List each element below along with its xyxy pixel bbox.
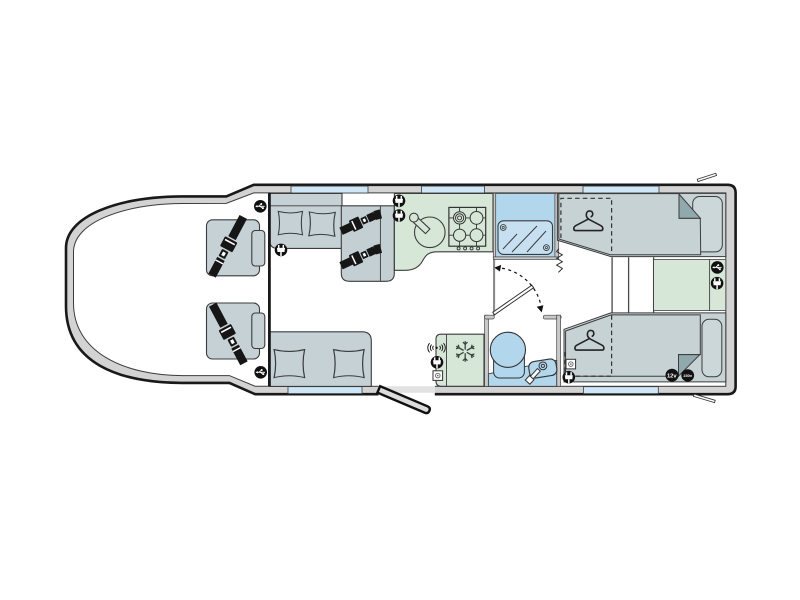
svg-text:230v: 230v xyxy=(683,373,692,378)
svg-text:12v: 12v xyxy=(667,373,677,379)
